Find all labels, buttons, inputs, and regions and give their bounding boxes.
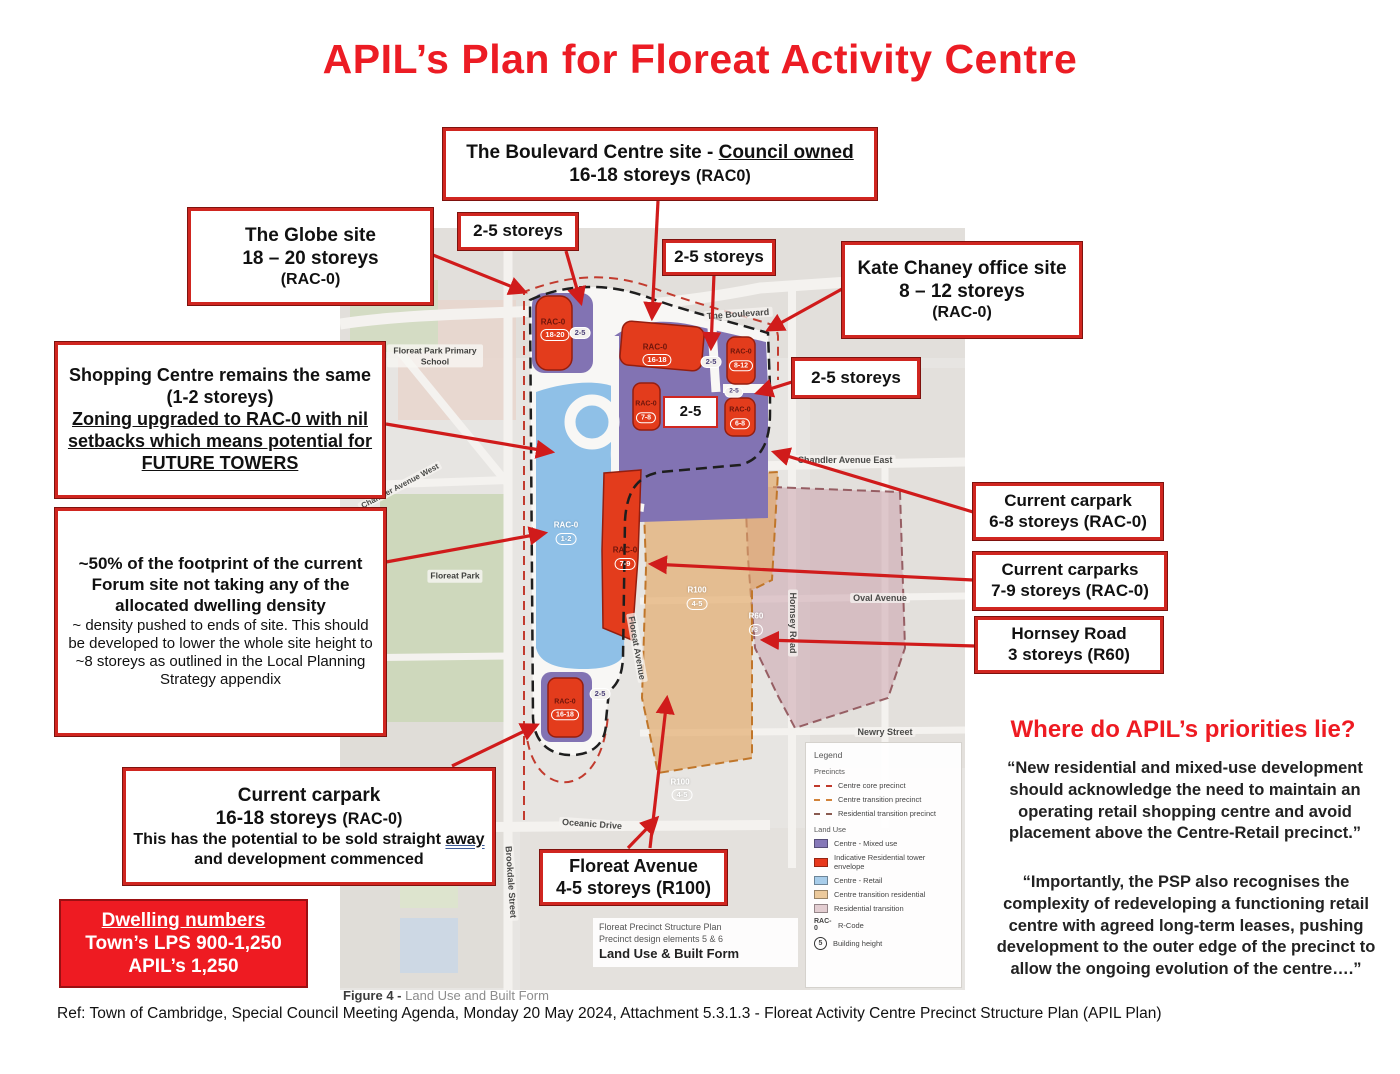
street-label-newry: Newry Street bbox=[854, 727, 915, 737]
zone-height-badge: 2-5 bbox=[701, 356, 722, 368]
callout-line: 6-8 storeys (RAC-0) bbox=[989, 512, 1147, 533]
legend-item: Centre transition precinct bbox=[814, 795, 953, 804]
callout-line: Kate Chaney office site bbox=[857, 257, 1066, 280]
color-swatch bbox=[814, 890, 828, 899]
callout-line: 16-18 storeys (RAC0) bbox=[569, 164, 750, 187]
map-legend: Legend Precincts Centre core precinct Ce… bbox=[805, 742, 962, 988]
legend-item: Centre transition residential bbox=[814, 890, 953, 899]
callout-storeys-n: 2-5 storeys bbox=[663, 240, 775, 275]
callout-inmap-2-5: 2-5 bbox=[663, 396, 718, 428]
callout-line: 7-9 storeys (RAC-0) bbox=[991, 581, 1149, 602]
callout-floreat-avenue: Floreat Avenue 4-5 storeys (R100) bbox=[540, 850, 727, 905]
legend-section-precincts: Precincts bbox=[814, 767, 953, 776]
legend-item: Centre - Mixed use bbox=[814, 839, 953, 848]
color-swatch bbox=[814, 839, 828, 848]
priorities-heading: Where do APIL’s priorities lie? bbox=[978, 716, 1388, 744]
page: APIL’s Plan for Floreat Activity Centre bbox=[0, 0, 1400, 1074]
map-attribution: Floreat Precinct Structure Plan Precinct… bbox=[593, 918, 798, 967]
zone-code: R100 bbox=[687, 586, 706, 595]
callout-line: (RAC-0) bbox=[932, 303, 992, 323]
callout-line: Shopping Centre remains the same (1-2 st… bbox=[64, 365, 376, 409]
callout-line: APIL’s 1,250 bbox=[128, 955, 238, 978]
callout-line: 8 – 12 storeys bbox=[899, 280, 1025, 303]
page-title: APIL’s Plan for Floreat Activity Centre bbox=[0, 36, 1400, 83]
callout-line: Current carpark bbox=[238, 784, 381, 807]
zone-height-badge: 8-12 bbox=[729, 360, 753, 371]
zone-code: RAC-0 bbox=[643, 343, 667, 352]
callout-current-carpark-sw: Current carpark 16-18 storeys (RAC-0) Th… bbox=[123, 768, 495, 885]
callout-line: ~50% of the footprint of the current For… bbox=[64, 554, 377, 616]
callout-storeys-e: 2-5 storeys bbox=[792, 358, 920, 398]
zone-height-badge: 16-18 bbox=[551, 709, 579, 720]
callout-line: The Boulevard Centre site - Council owne… bbox=[466, 141, 853, 164]
callout-dwelling-numbers: Dwelling numbers Town’s LPS 900-1,250 AP… bbox=[59, 899, 308, 988]
callout-line: 3 storeys (R60) bbox=[1008, 645, 1130, 666]
zone-height-badge: 7-9 bbox=[615, 558, 636, 570]
callout-hornsey-road: Hornsey Road 3 storeys (R60) bbox=[975, 617, 1163, 673]
attr-title: Land Use & Built Form bbox=[599, 946, 792, 963]
callout-storeys-nw: 2-5 storeys bbox=[458, 213, 578, 250]
color-swatch bbox=[814, 876, 828, 885]
zone-code: RAC-0 bbox=[729, 407, 750, 414]
priorities-quote-1: “New residential and mixed-use developme… bbox=[985, 758, 1385, 845]
legend-item: Centre - Retail bbox=[814, 876, 953, 885]
zone-height-badge: 7-8 bbox=[636, 412, 656, 423]
legend-title: Legend bbox=[814, 750, 953, 760]
zone-height-badge: 1-2 bbox=[556, 533, 577, 545]
callout-shopping-centre: Shopping Centre remains the same (1-2 st… bbox=[55, 342, 385, 498]
zone-height-badge: 6-8 bbox=[730, 418, 750, 429]
legend-item-height: 5Building height bbox=[814, 937, 953, 950]
building-height-icon: 5 bbox=[814, 937, 827, 950]
color-swatch bbox=[814, 858, 828, 867]
callout-line: 18 – 20 storeys bbox=[242, 247, 378, 270]
dash-swatch bbox=[814, 785, 832, 787]
dash-swatch bbox=[814, 813, 832, 815]
zone-height-badge: 3 bbox=[749, 624, 763, 636]
callout-line: Floreat Avenue bbox=[569, 856, 698, 878]
legend-item: Residential transition bbox=[814, 904, 953, 913]
zone-code: RAC-0 bbox=[635, 401, 656, 408]
zone-height-badge: 18-20 bbox=[540, 329, 569, 341]
callout-line: ~ density pushed to ends of site. This s… bbox=[64, 617, 377, 690]
callout-line: Dwelling numbers bbox=[102, 909, 266, 932]
zone-height-badge: 2-5 bbox=[590, 688, 611, 700]
callout-line: Hornsey Road bbox=[1011, 624, 1126, 645]
zone-code: RAC-0 bbox=[730, 349, 751, 356]
callout-line: Current carparks bbox=[1001, 560, 1138, 581]
legend-item: Indicative Residential tower envelope bbox=[814, 853, 953, 871]
zone-code: RAC-0 bbox=[613, 546, 637, 555]
callout-line: Zoning upgraded to RAC-0 with nil setbac… bbox=[64, 409, 376, 475]
attr-line: Floreat Precinct Structure Plan bbox=[599, 922, 792, 934]
callout-globe-site: The Globe site 18 – 20 storeys (RAC-0) bbox=[188, 208, 433, 305]
callout-current-carparks-e2: Current carparks 7-9 storeys (RAC-0) bbox=[973, 552, 1167, 610]
callout-current-carpark-e1: Current carpark 6-8 storeys (RAC-0) bbox=[973, 483, 1163, 540]
zone-code: RAC-0 bbox=[554, 521, 578, 530]
zone-height-badge: 4-5 bbox=[672, 789, 693, 801]
attr-line: Precinct design elements 5 & 6 bbox=[599, 934, 792, 946]
figure-caption-bold: Figure 4 - bbox=[343, 988, 402, 1003]
street-label-oval: Oval Avenue bbox=[850, 593, 910, 603]
place-label-school: Floreat Park Primary School bbox=[387, 344, 483, 367]
legend-item: Residential transition precinct bbox=[814, 809, 953, 818]
street-label-hornsey: Hornsey Road bbox=[788, 589, 798, 656]
figure-caption: Figure 4 - Land Use and Built Form bbox=[343, 988, 549, 1003]
callout-line: Town’s LPS 900-1,250 bbox=[85, 932, 281, 955]
callout-line: 16-18 storeys (RAC-0) bbox=[216, 807, 403, 830]
zone-height-badge: 2-5 bbox=[724, 387, 743, 398]
legend-section-landuse: Land Use bbox=[814, 825, 953, 834]
place-label-park: Floreat Park bbox=[427, 570, 482, 583]
priorities-quote-2: “Importantly, the PSP also recognises th… bbox=[990, 872, 1382, 981]
callout-forum-footprint: ~50% of the footprint of the current For… bbox=[55, 508, 386, 736]
zone-height-badge: 16-18 bbox=[642, 354, 671, 366]
callout-boulevard-centre: The Boulevard Centre site - Council owne… bbox=[443, 128, 877, 200]
street-label-chandler-east: Chandler Avenue East bbox=[795, 455, 896, 465]
legend-item: Centre core precinct bbox=[814, 781, 953, 790]
reference-line: Ref: Town of Cambridge, Special Council … bbox=[57, 1005, 1397, 1023]
zone-code: R60 bbox=[749, 612, 764, 621]
color-swatch bbox=[814, 904, 828, 913]
callout-line: This has the potential to be sold straig… bbox=[132, 830, 486, 869]
zone-code: RAC-0 bbox=[554, 699, 575, 706]
zone-height-badge: 2-5 bbox=[570, 327, 591, 339]
callout-line: Current carpark bbox=[1004, 491, 1132, 512]
legend-item-rcode: RAC-0R-Code bbox=[814, 918, 953, 932]
callout-kate-chaney: Kate Chaney office site 8 – 12 storeys (… bbox=[842, 242, 1082, 338]
zone-code: R100 bbox=[670, 778, 689, 787]
callout-line: The Globe site bbox=[245, 224, 376, 247]
callout-line: (RAC-0) bbox=[281, 270, 341, 290]
zone-code: RAC-0 bbox=[541, 318, 565, 327]
callout-line: 4-5 storeys (R100) bbox=[556, 878, 711, 900]
zone-height-badge: 4-5 bbox=[687, 598, 708, 610]
dash-swatch bbox=[814, 799, 832, 801]
